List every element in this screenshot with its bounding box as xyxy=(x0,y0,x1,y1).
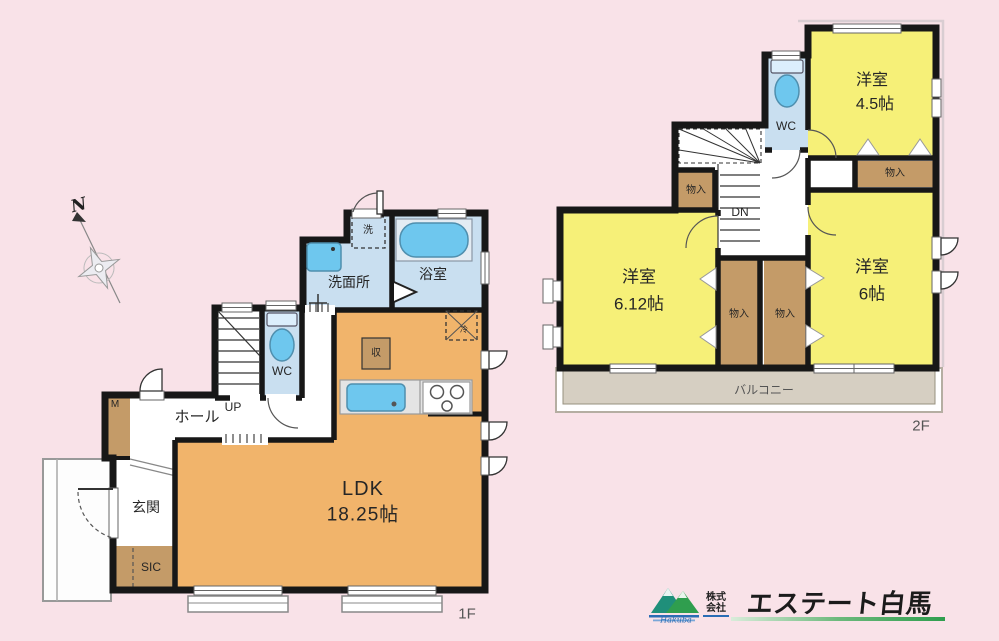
washroom-label: 洗面所 xyxy=(328,275,370,289)
stairs-down-label: DN xyxy=(731,206,748,218)
closet-stairs-label: 物入 xyxy=(686,186,706,196)
room612-size-label: 6.12帖 xyxy=(614,296,664,313)
washer-label: 洗 xyxy=(363,226,373,236)
m-closet-label: M xyxy=(111,400,119,410)
balcony-label: バルコニー xyxy=(734,384,794,396)
room612-name-label: 洋室 xyxy=(622,269,656,286)
floor1-label: 1F xyxy=(458,607,476,622)
bath-label: 浴室 xyxy=(419,267,447,281)
fridge-label: 冷 xyxy=(460,326,468,334)
company-name-label: エステート白馬 xyxy=(745,584,934,621)
sic-label: SIC xyxy=(141,561,161,573)
entrance-label: 玄関 xyxy=(132,500,160,514)
room6-size-label: 6帖 xyxy=(859,286,885,303)
room45-area xyxy=(808,28,936,158)
compass-icon xyxy=(70,212,128,303)
north-label: N xyxy=(69,196,88,216)
room45-size-label: 4.5帖 xyxy=(856,97,894,113)
company-type-underline xyxy=(703,615,729,617)
closet-room45-label: 物入 xyxy=(885,169,905,179)
closet-mid-right-label: 物入 xyxy=(775,310,795,320)
floorplan-canvas: 洗 洗面所 浴室 WC UP ホール M 玄関 SIC 収 冷 LDK 18.2… xyxy=(0,0,999,641)
floor2-label: 2F xyxy=(912,419,930,434)
wc2-label: WC xyxy=(776,120,796,132)
company-type-top-label: 株式 xyxy=(706,593,726,604)
stairs-up-label: UP xyxy=(225,401,242,413)
storage-label: 収 xyxy=(371,349,381,359)
wc1-label: WC xyxy=(272,365,292,377)
floorplan-drawing xyxy=(0,0,999,641)
closet-mid-left-label: 物入 xyxy=(729,310,749,320)
ldk-size-label: 18.25帖 xyxy=(327,506,400,525)
ldk-name-label: LDK xyxy=(342,479,384,499)
room6-name-label: 洋室 xyxy=(855,259,889,276)
floor2-geometry xyxy=(543,21,958,412)
room6-area xyxy=(808,190,936,368)
company-name-underline xyxy=(731,617,945,621)
room612-area xyxy=(560,210,718,368)
hall-label: ホール xyxy=(174,410,219,425)
company-type-bottom-label: 会社 xyxy=(706,604,726,615)
room45-name-label: 洋室 xyxy=(856,73,888,89)
mountain-script-label: Hakuba xyxy=(660,616,692,625)
